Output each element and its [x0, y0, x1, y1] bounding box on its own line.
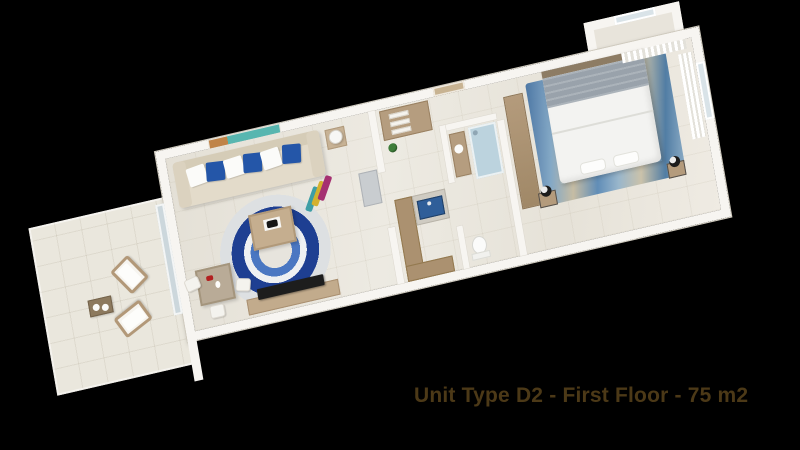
terrace-side-table: [87, 295, 113, 317]
table-cushion: [101, 303, 109, 311]
plant: [388, 142, 398, 153]
towel: [391, 126, 411, 135]
entrance-door: [433, 81, 466, 97]
bay-window: [614, 7, 656, 25]
sofa-pillow-blue: [282, 143, 301, 164]
terrace-chair: [110, 255, 149, 295]
dining-chair: [235, 278, 251, 291]
apartment-unit: [155, 26, 731, 342]
fridge-cabinet: [358, 169, 382, 207]
sofa-armrest: [306, 130, 326, 178]
terrace-chair: [113, 299, 153, 338]
closet-shelves: [379, 100, 433, 141]
floor-plan-render: Unit Type D2 - First Floor - 75 m2: [0, 0, 800, 450]
unit-caption: Unit Type D2 - First Floor - 75 m2: [414, 384, 748, 408]
dining-chair: [209, 303, 226, 319]
chair-cushion: [117, 263, 142, 288]
wall-bathroom: [457, 225, 470, 269]
bed: [541, 49, 662, 185]
table-cushion: [92, 303, 100, 311]
chair-cushion: [121, 307, 147, 332]
